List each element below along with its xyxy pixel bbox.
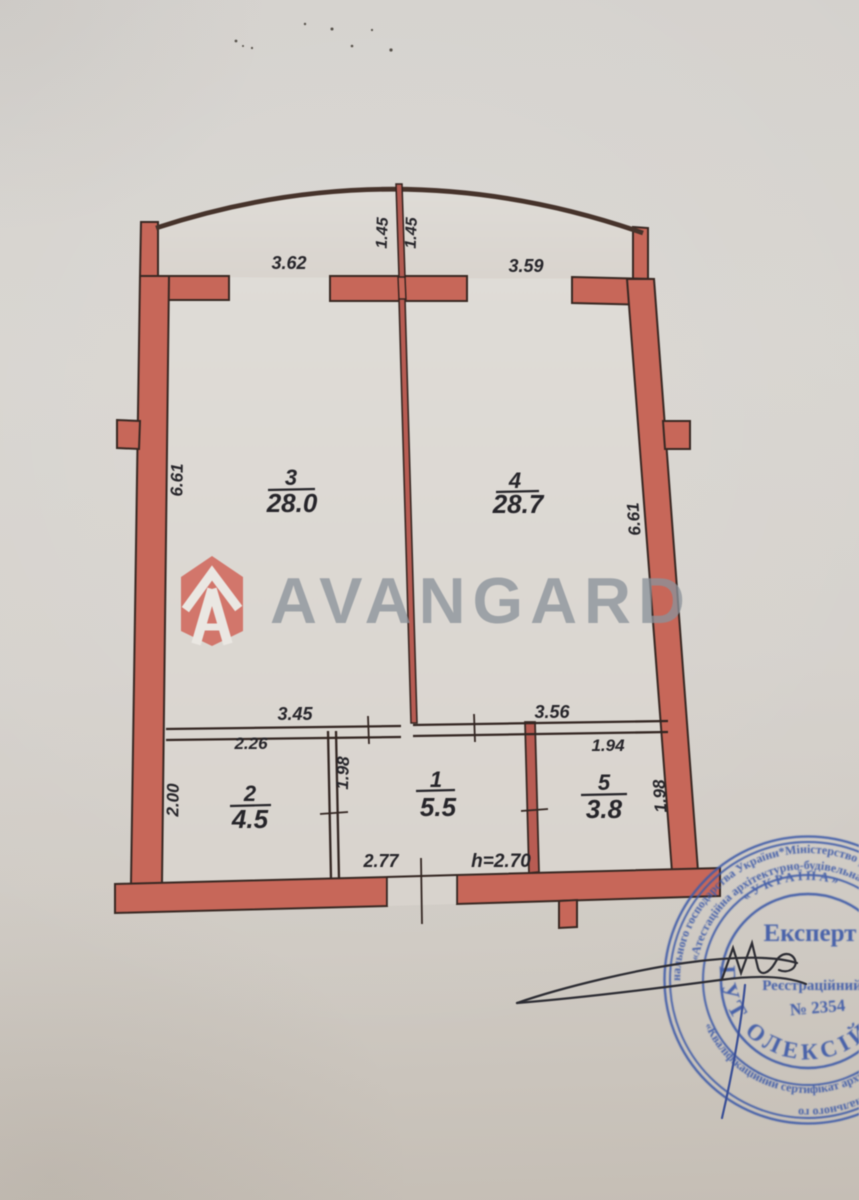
svg-text:1: 1 <box>430 767 442 792</box>
svg-text:Експерт: Експерт <box>764 920 857 947</box>
svg-text:28.0: 28.0 <box>266 488 318 518</box>
svg-text:3.8: 3.8 <box>586 794 623 824</box>
svg-text:4.5: 4.5 <box>231 804 269 834</box>
svg-text:2.00: 2.00 <box>163 783 183 818</box>
svg-text:1.45: 1.45 <box>403 216 421 249</box>
svg-text:3.62: 3.62 <box>271 253 306 273</box>
svg-text:AVANGARD: AVANGARD <box>270 564 692 637</box>
svg-text:№ 2354: № 2354 <box>789 996 846 1020</box>
svg-text:1.45: 1.45 <box>374 216 392 249</box>
svg-text:6.61: 6.61 <box>623 502 644 536</box>
svg-text:1.94: 1.94 <box>591 736 625 755</box>
svg-text:28.7: 28.7 <box>492 489 545 519</box>
svg-text:3.45: 3.45 <box>277 704 313 724</box>
svg-text:1.98: 1.98 <box>649 778 670 813</box>
svg-text:3.56: 3.56 <box>534 702 570 722</box>
svg-text:3: 3 <box>285 465 297 490</box>
svg-text:5: 5 <box>598 770 611 795</box>
svg-text:2: 2 <box>243 781 257 806</box>
svg-text:2.77: 2.77 <box>362 851 399 871</box>
svg-text:2.26: 2.26 <box>233 734 268 753</box>
svg-text:6.61: 6.61 <box>167 463 187 496</box>
svg-text:h=2.70: h=2.70 <box>471 851 531 872</box>
svg-text:5.5: 5.5 <box>420 792 457 822</box>
svg-text:3.59: 3.59 <box>508 256 543 276</box>
svg-text:1.98: 1.98 <box>333 756 353 790</box>
svg-text:Реєстраційний: Реєстраційний <box>762 978 859 994</box>
